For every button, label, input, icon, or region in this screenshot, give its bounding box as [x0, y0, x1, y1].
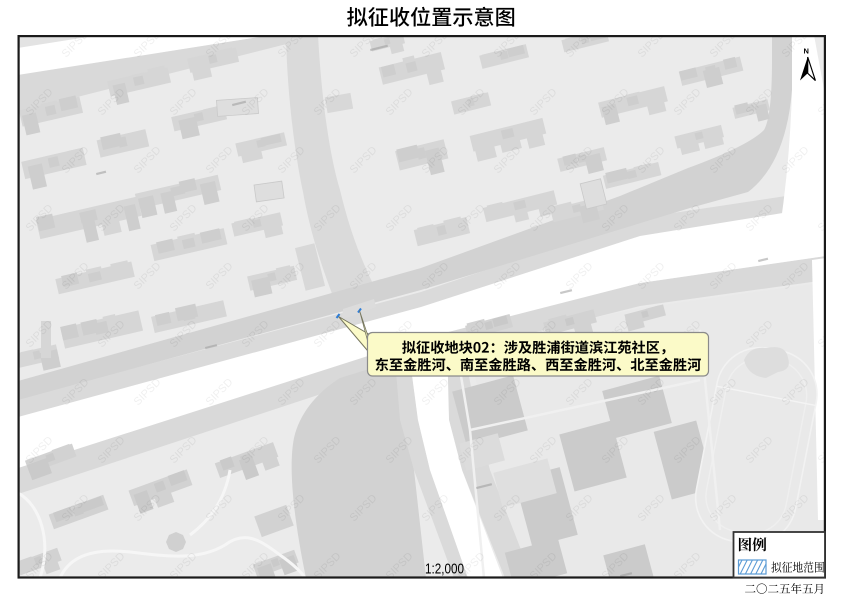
- svg-text:1:2,000: 1:2,000: [425, 561, 464, 578]
- svg-text:N: N: [804, 47, 809, 56]
